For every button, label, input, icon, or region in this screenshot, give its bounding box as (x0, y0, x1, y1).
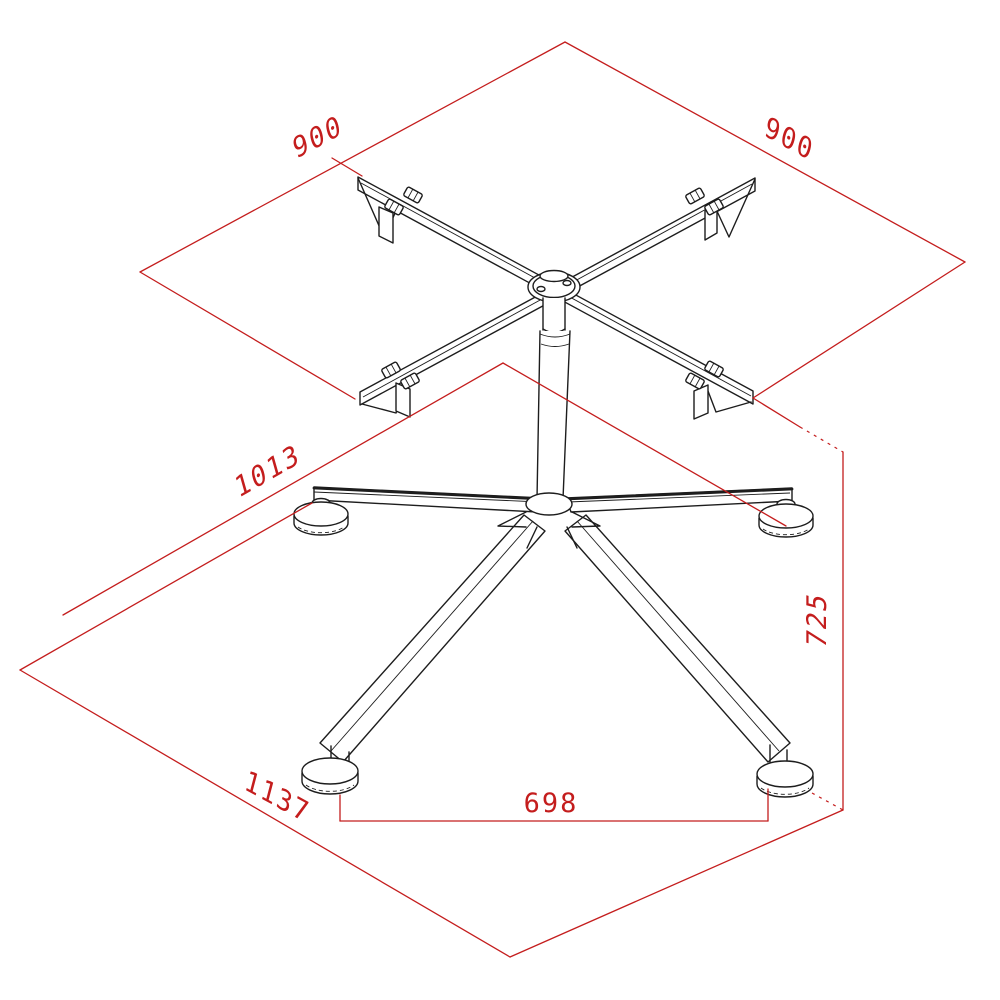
dimension-label-900-left: 900 (290, 109, 346, 166)
table-base-isometric-drawing: 900 900 1013 725 1137 698 (0, 0, 1000, 1000)
star-base (294, 487, 813, 797)
clip (403, 187, 423, 204)
foot-disc (757, 761, 813, 787)
hub-bolt-hole (563, 281, 571, 286)
dimension-line-1013 (63, 363, 503, 615)
dimension-label-698: 698 (524, 788, 579, 819)
foot-disc (302, 758, 358, 784)
clip (685, 188, 705, 205)
dimension-line-1137 (20, 670, 510, 957)
flange-lower-right (694, 385, 708, 419)
foot-back-left (294, 499, 348, 536)
column-fill (537, 331, 570, 499)
foot-disc-knurl (763, 529, 809, 535)
extension-line-725-bottom-dashed (812, 793, 843, 810)
flange-upper-left (379, 207, 393, 243)
extension-line-left (140, 272, 355, 399)
clip (704, 199, 724, 216)
foot-disc-knurl (298, 527, 344, 533)
hub-cap (540, 271, 568, 282)
hub-bolt-hole (537, 287, 545, 292)
extension-line-1137-upper (20, 503, 312, 670)
dimension-label-1013: 1013 (232, 438, 304, 505)
extension-line-right (753, 262, 965, 398)
hub-neck-fill (543, 298, 565, 330)
base-center-cap (526, 493, 572, 515)
dimension-label-725: 725 (802, 589, 833, 651)
foot-disc (759, 504, 813, 528)
foot-front-left (302, 746, 358, 794)
leg-edge-line (331, 521, 533, 751)
dimension-label-900-right: 900 (761, 111, 817, 168)
leg-edge-line (577, 521, 779, 751)
foot-back-right (759, 500, 813, 538)
foot-disc-knurl (306, 785, 354, 791)
dimension-line-bottom-right (510, 810, 843, 957)
technical-drawing-canvas: 900 900 1013 725 1137 698 (0, 0, 1000, 1000)
foot-disc (294, 502, 348, 526)
dimension-line-900-left (140, 42, 565, 272)
dimension-line-900-right (565, 42, 965, 262)
extension-line-725-top (753, 398, 800, 427)
extension-line-725-top-dashed (800, 427, 843, 452)
